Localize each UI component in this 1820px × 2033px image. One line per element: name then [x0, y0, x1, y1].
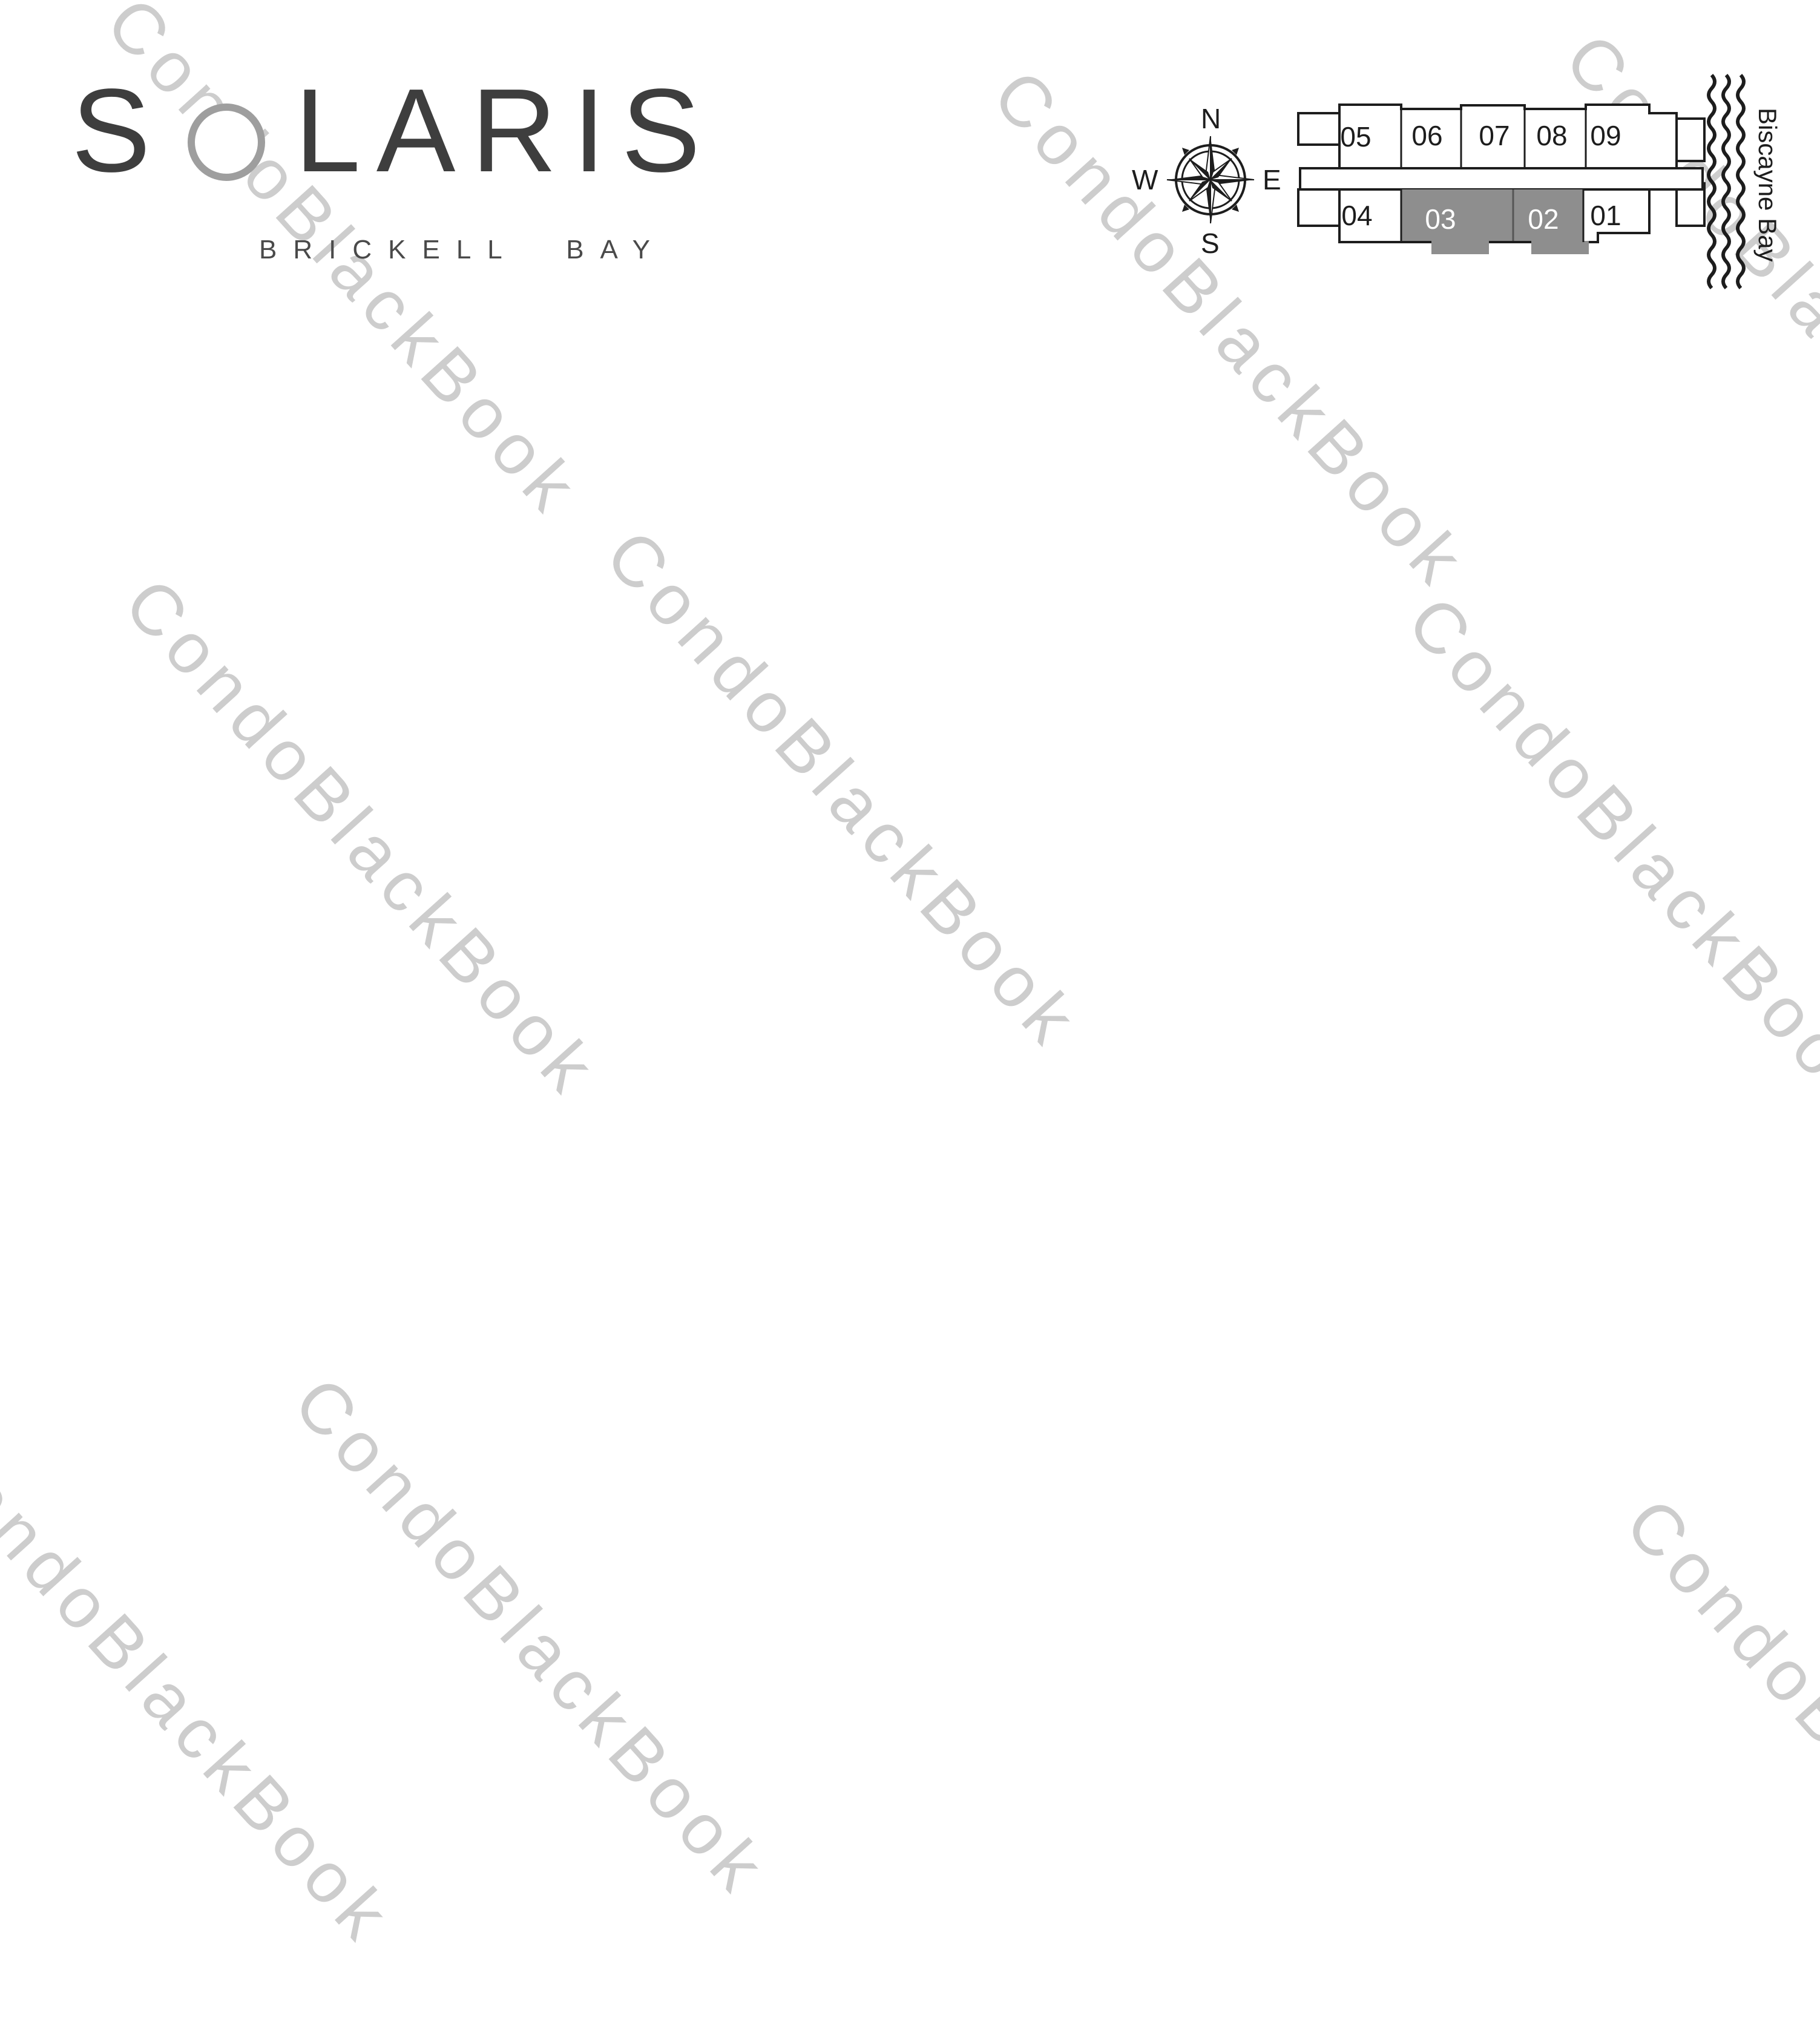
- svg-text:01: 01: [1590, 200, 1621, 231]
- svg-text:02: 02: [1528, 203, 1559, 235]
- svg-text:07: 07: [1479, 120, 1510, 151]
- svg-text:E: E: [1263, 164, 1281, 195]
- svg-text:W: W: [1132, 164, 1158, 195]
- svg-text:S: S: [1201, 228, 1220, 259]
- svg-text:09: 09: [1590, 120, 1621, 151]
- svg-text:06: 06: [1411, 120, 1442, 151]
- svg-text:04: 04: [1341, 200, 1372, 231]
- svg-text:Biscayne Bay: Biscayne Bay: [1753, 108, 1782, 261]
- svg-text:N: N: [1201, 103, 1221, 134]
- svg-text:03: 03: [1425, 203, 1456, 235]
- svg-text:05: 05: [1340, 121, 1371, 153]
- svg-text:08: 08: [1536, 120, 1567, 151]
